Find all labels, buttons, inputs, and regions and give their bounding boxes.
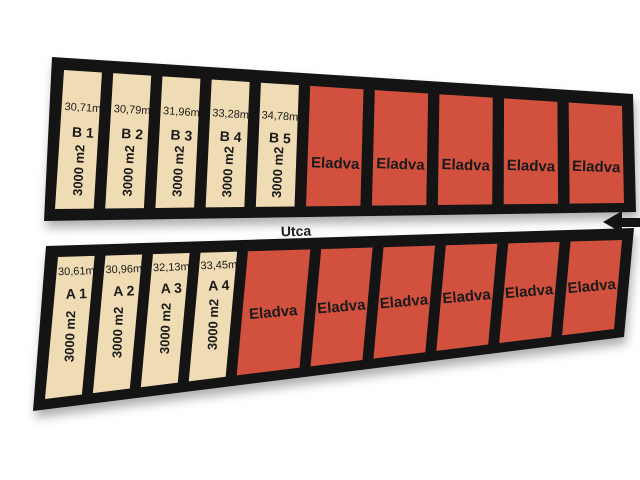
plot-frontage-label: 33,45m	[200, 259, 237, 272]
plot-sold: Eladva	[569, 103, 624, 204]
plot-area-label: 3000 m2	[157, 303, 174, 355]
plot-sold: Eladva	[372, 90, 428, 206]
plot-B5: 34,78mB 53000 m2	[256, 83, 299, 207]
plot-id-label: A 2	[113, 282, 135, 299]
plot-area-label: 3000 m2	[61, 310, 78, 362]
plot-sold-shape	[438, 94, 493, 205]
plot-sold-shape	[306, 86, 363, 206]
plot-id-label: A 4	[208, 277, 230, 294]
plot-sold: Eladva	[311, 248, 373, 367]
plot-B4: 33,28mB 43000 m2	[206, 80, 250, 208]
plot-id-label: B 4	[219, 128, 242, 145]
plot-sold: Eladva	[306, 86, 363, 206]
plot-area-label: 3000 m2	[70, 144, 88, 196]
plot-frontage-label: 30,96m	[105, 263, 142, 276]
plot-B3: 31,96mB 33000 m2	[155, 76, 200, 208]
plot-id-label: B 5	[269, 129, 292, 146]
parcel-map-canvas: 30,71mB 13000 m230,79mB 23000 m231,96mB …	[0, 0, 640, 480]
plot-sold-shape	[569, 103, 624, 204]
plot-area-label: 3000 m2	[109, 307, 126, 359]
plot-area-label: 3000 m2	[120, 145, 138, 197]
plot-id-label: B 2	[121, 125, 144, 142]
plot-sold: Eladva	[499, 242, 559, 343]
plot-sold: Eladva	[373, 246, 435, 359]
plot-frontage-label: 30,71m	[64, 101, 101, 115]
plot-frontage-label: 30,79m	[113, 103, 150, 117]
plot-frontage-label: 31,96m	[163, 105, 200, 119]
plot-sold-shape	[504, 98, 558, 204]
plot-id-label: B 3	[170, 126, 193, 143]
plot-sold: Eladva	[562, 240, 622, 335]
parcel-map: 30,71mB 13000 m230,79mB 23000 m231,96mB …	[0, 0, 640, 480]
plot-area-label: 3000 m2	[269, 146, 287, 198]
plot-sold-label: Eladva	[506, 157, 556, 176]
plot-sold-label: Eladva	[376, 155, 426, 174]
plot-sold: Eladva	[438, 94, 493, 205]
plot-frontage-label: 32,13m	[153, 261, 190, 274]
plot-B2: 30,79mB 23000 m2	[105, 73, 151, 208]
plot-sold-label: Eladva	[311, 154, 361, 173]
plot-sold-label: Eladva	[572, 158, 622, 177]
plot-area-label: 3000 m2	[169, 145, 187, 197]
plot-sold-shape	[372, 90, 428, 206]
plot-area-label: 3000 m2	[205, 299, 222, 351]
plot-id-label: B 1	[72, 124, 95, 141]
plot-frontage-label: 30,61m	[58, 265, 95, 278]
plot-sold: Eladva	[237, 249, 311, 375]
plot-sold: Eladva	[436, 244, 497, 351]
plot-id-label: A 1	[65, 285, 87, 302]
plot-frontage-label: 34,78m	[261, 109, 298, 123]
plot-sold: Eladva	[504, 98, 558, 204]
plot-area-label: 3000 m2	[219, 146, 237, 198]
street-label: Utca	[281, 223, 312, 240]
plot-frontage-label: 33,28m	[212, 107, 249, 121]
plot-id-label: A 3	[160, 280, 182, 297]
plot-sold-label: Eladva	[441, 156, 491, 175]
